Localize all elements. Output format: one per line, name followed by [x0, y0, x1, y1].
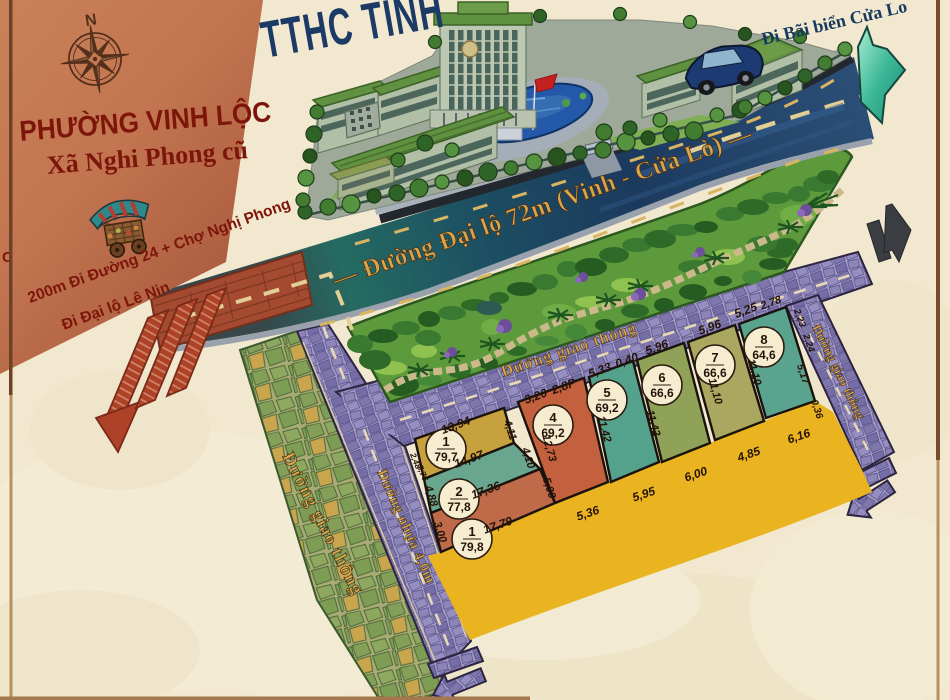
- svg-text:5: 5: [603, 385, 610, 400]
- svg-text:4: 4: [549, 410, 557, 425]
- svg-text:2: 2: [455, 484, 462, 499]
- svg-text:66,6: 66,6: [650, 386, 674, 400]
- svg-text:7: 7: [711, 350, 718, 365]
- svg-text:1: 1: [468, 524, 475, 539]
- svg-text:79,8: 79,8: [460, 540, 484, 554]
- svg-text:77,8: 77,8: [447, 500, 471, 514]
- svg-text:8: 8: [760, 332, 767, 347]
- svg-text:6: 6: [658, 370, 665, 385]
- svg-text:69,2: 69,2: [595, 401, 619, 415]
